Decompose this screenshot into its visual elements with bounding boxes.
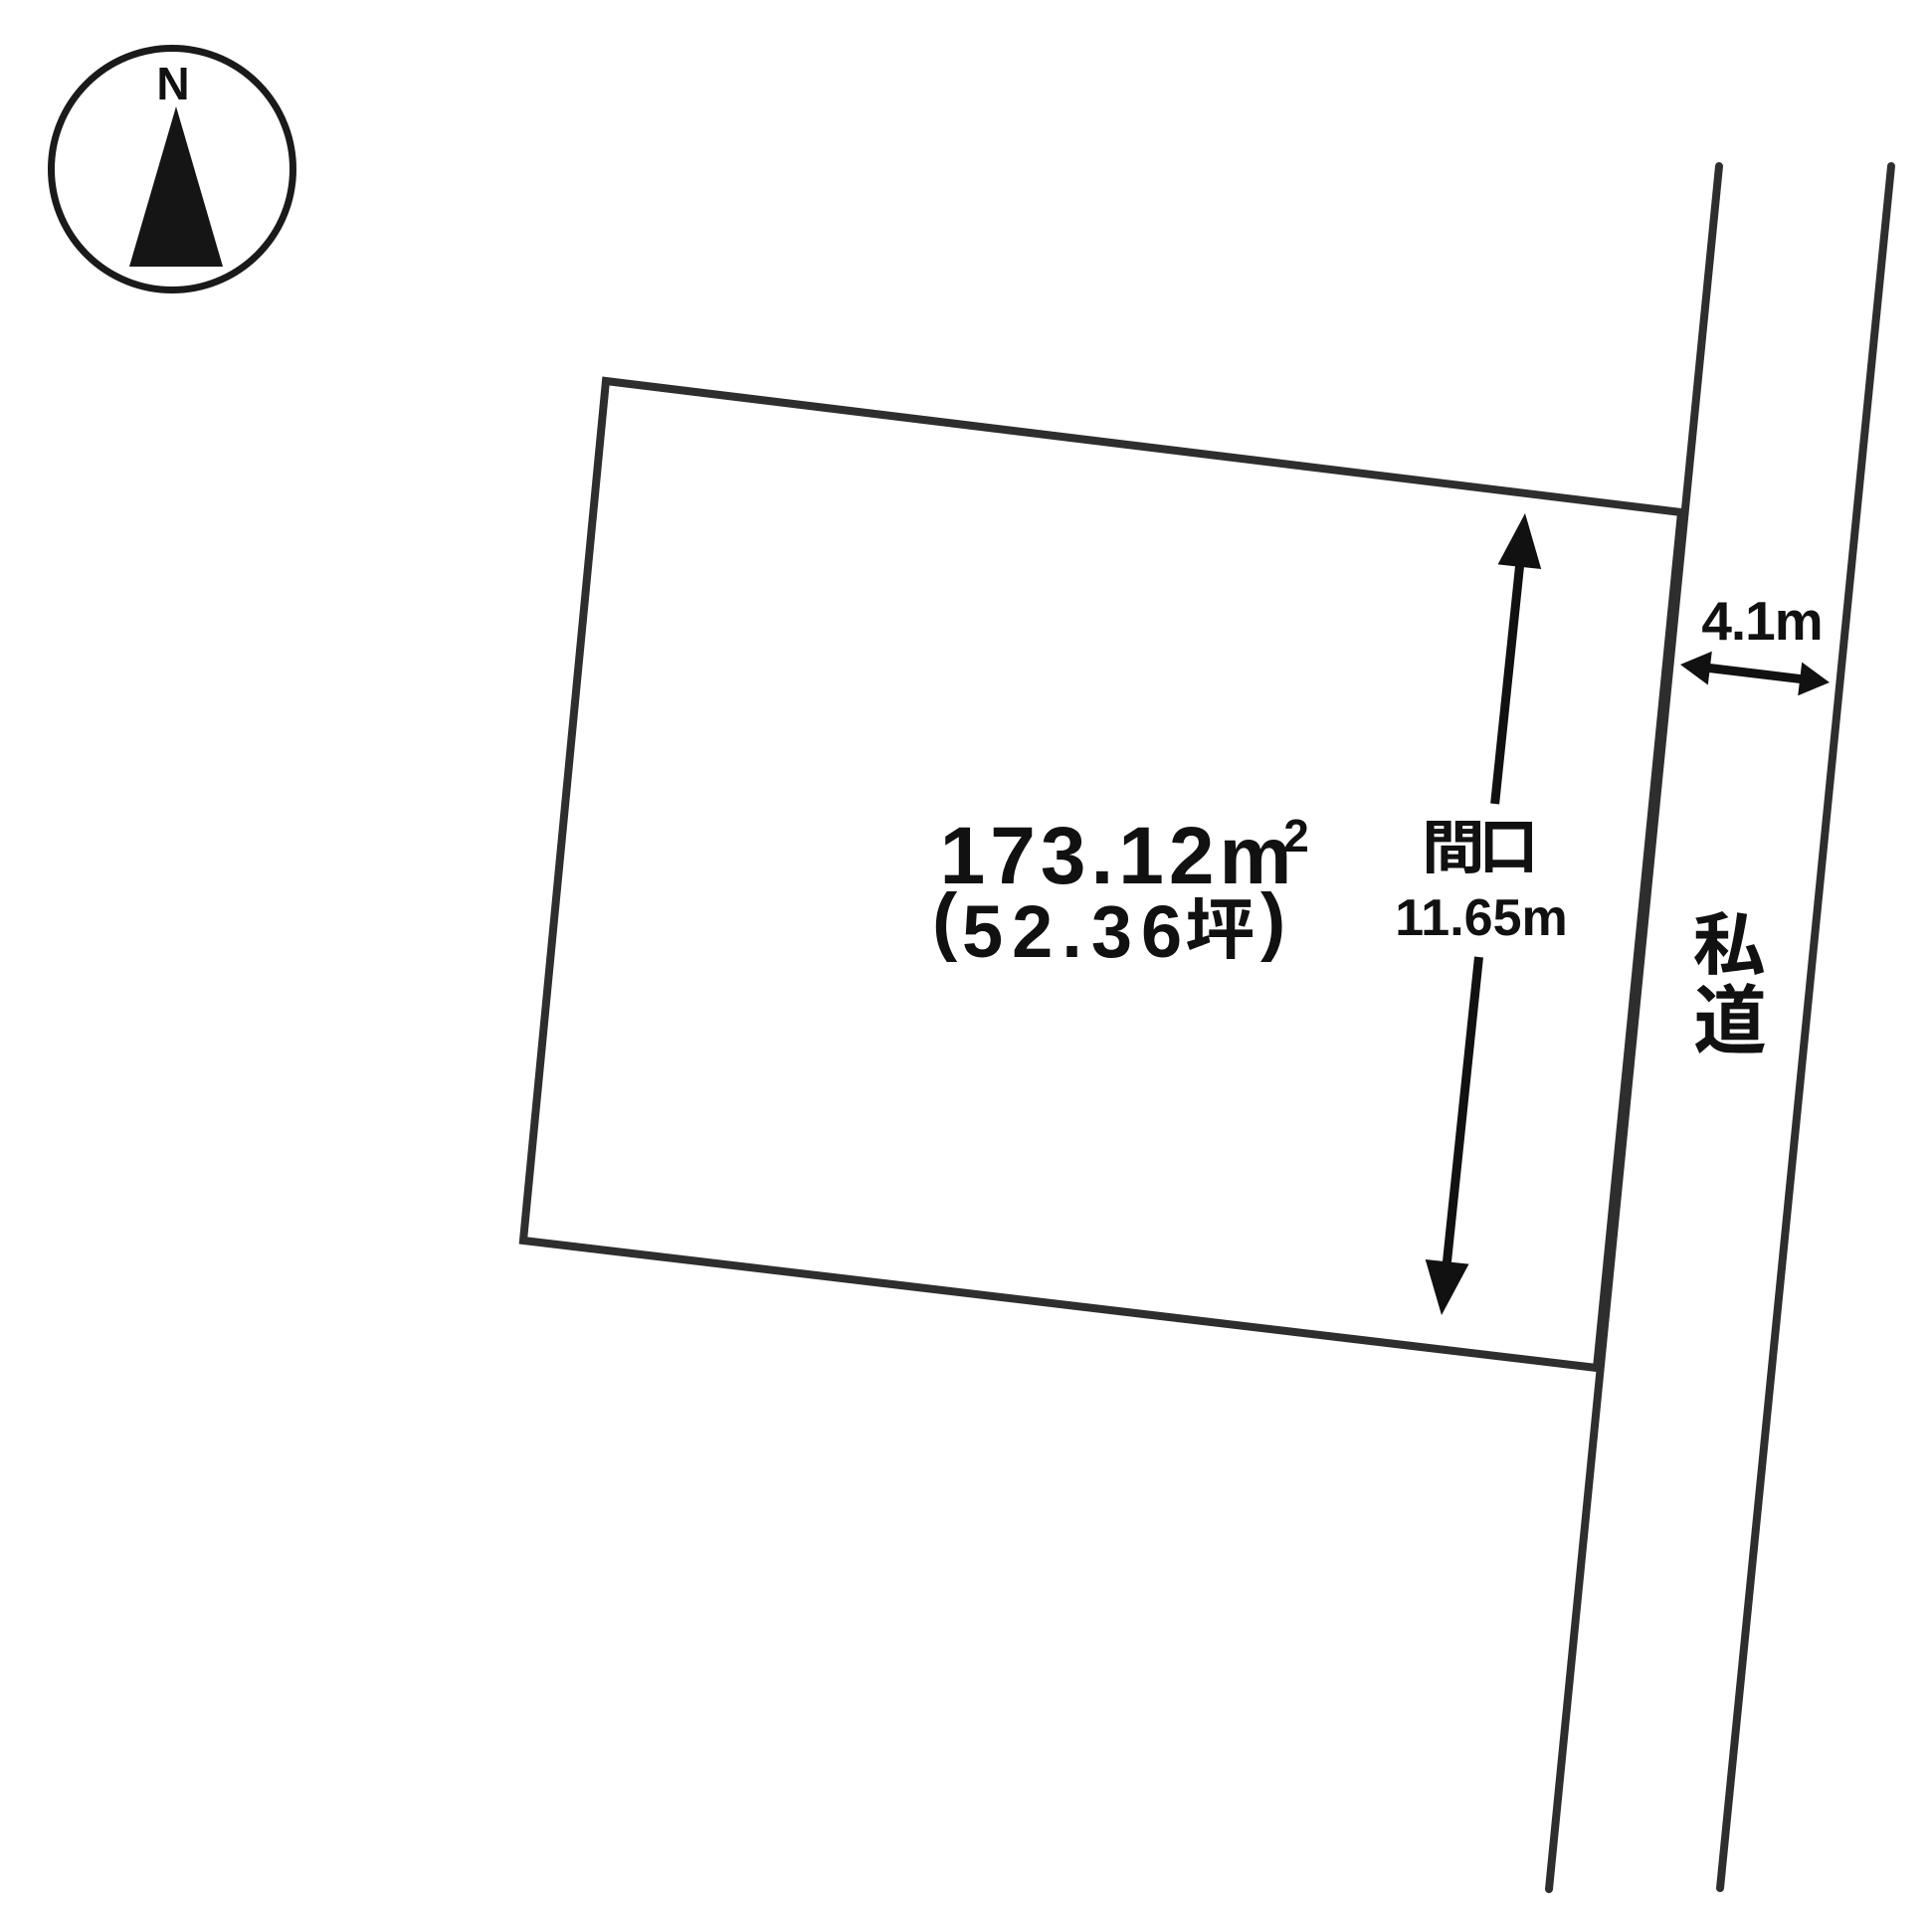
svg-text:173.12m: 173.12m xyxy=(940,811,1297,901)
svg-text:N: N xyxy=(156,58,189,109)
svg-text:): ) xyxy=(1260,878,1285,963)
svg-text:2: 2 xyxy=(1283,810,1309,862)
svg-text:11.65m: 11.65m xyxy=(1395,889,1568,947)
svg-text:4.1m: 4.1m xyxy=(1701,590,1822,652)
svg-text:(: ( xyxy=(932,878,958,963)
svg-text:52.36: 52.36 xyxy=(962,890,1191,973)
